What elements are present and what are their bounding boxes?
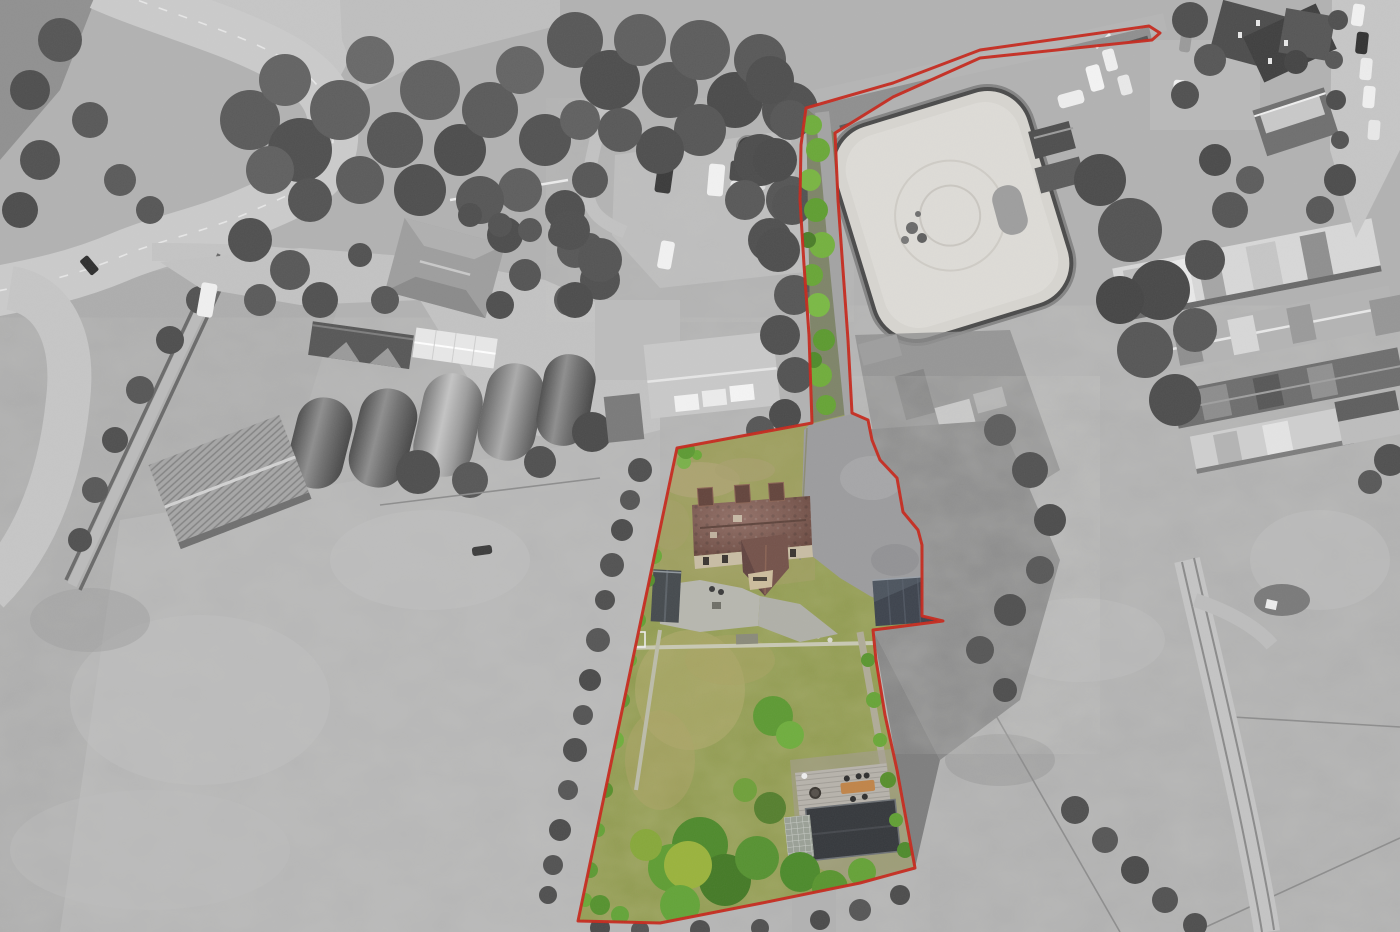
aerial-photo bbox=[0, 0, 1400, 932]
photo-grain-overlay bbox=[0, 0, 1400, 932]
